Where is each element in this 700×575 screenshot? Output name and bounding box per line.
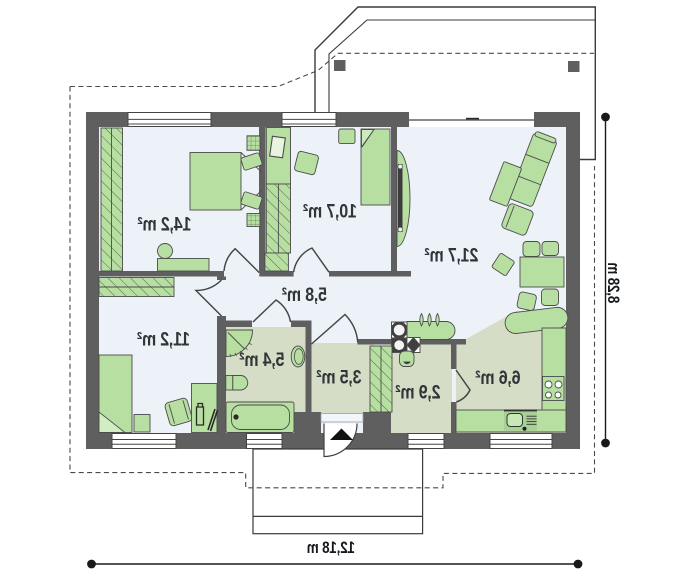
- svg-text:3,5 m²: 3,5 m²: [316, 366, 361, 388]
- svg-text:6,6 m²: 6,6 m²: [475, 366, 520, 388]
- svg-text:2,9 m²: 2,9 m²: [395, 381, 440, 403]
- svg-text:8,28 m: 8,28 m: [604, 263, 623, 304]
- svg-text:21,7 m²: 21,7 m²: [424, 244, 478, 266]
- svg-text:5,8 m²: 5,8 m²: [282, 283, 327, 305]
- svg-text:14,2 m²: 14,2 m²: [137, 213, 191, 235]
- svg-text:12,18 m: 12,18 m: [307, 539, 355, 558]
- svg-text:5,4 m²: 5,4 m²: [239, 348, 284, 370]
- svg-text:10,7 m²: 10,7 m²: [303, 200, 357, 222]
- svg-text:11,2 m²: 11,2 m²: [137, 328, 190, 350]
